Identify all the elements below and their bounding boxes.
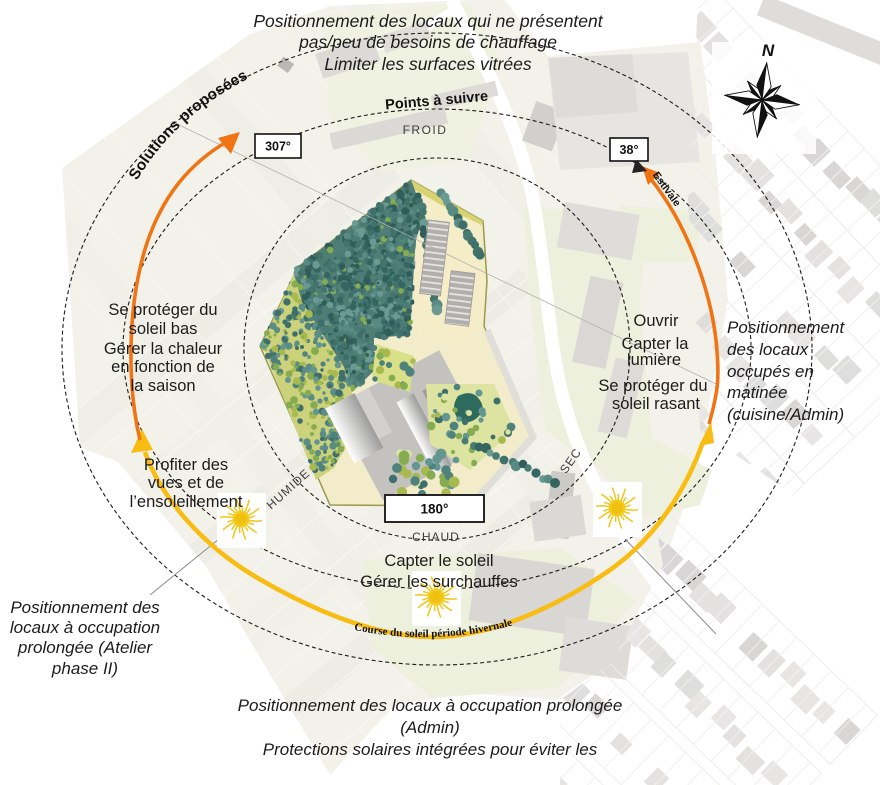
svg-text:(Admin): (Admin) [400,718,460,737]
svg-text:la saison: la saison [130,377,195,395]
svg-text:soleil bas: soleil bas [129,320,198,338]
svg-text:locaux à occupation: locaux à occupation [10,618,160,637]
svg-text:Limiter les surfaces vitrées: Limiter les surfaces vitrées [324,54,531,74]
svg-text:Se protéger du: Se protéger du [108,301,217,319]
svg-text:occupés en: occupés en [727,362,814,381]
svg-text:180°: 180° [421,501,449,516]
svg-text:Positionnement des locaux à oc: Positionnement des locaux à occupation p… [238,696,623,715]
svg-text:Profiter des: Profiter des [144,456,228,474]
svg-text:Positionnement des locaux qui: Positionnement des locaux qui ne présent… [253,11,603,31]
svg-text:vues et de: vues et de [148,474,224,492]
svg-text:l’ensoleillement: l’ensoleillement [130,493,243,511]
svg-text:pas/peu de besoins de chauffag: pas/peu de besoins de chauffage [298,32,557,52]
svg-text:38°: 38° [620,143,639,157]
svg-text:des locaux: des locaux [727,340,809,359]
svg-text:Se protéger du: Se protéger du [598,377,707,395]
svg-text:prolongée (Atelier: prolongée (Atelier [17,638,154,657]
svg-text:Positionnement des: Positionnement des [10,598,160,617]
svg-text:phase II): phase II) [51,659,118,678]
svg-text:FROID: FROID [403,123,448,137]
svg-text:matinée: matinée [727,383,787,402]
svg-text:Gérer la chaleur: Gérer la chaleur [104,340,223,358]
svg-text:lumière: lumière [627,351,681,369]
svg-text:Positionnement: Positionnement [727,318,845,337]
svg-text:N: N [762,41,775,60]
svg-text:(cuisine/Admin): (cuisine/Admin) [727,405,844,424]
svg-text:CHAUD: CHAUD [412,530,460,544]
svg-text:Gérer les surchauffes: Gérer les surchauffes [360,573,517,591]
svg-text:307°: 307° [265,140,291,154]
svg-text:Capter le soleil: Capter le soleil [384,552,493,570]
svg-text:en fonction de: en fonction de [111,358,215,376]
svg-text:Protections solaires intégrées: Protections solaires intégrées pour évit… [263,740,598,759]
svg-text:soleil rasant: soleil rasant [612,395,700,413]
svg-text:Ouvrir: Ouvrir [634,312,679,330]
